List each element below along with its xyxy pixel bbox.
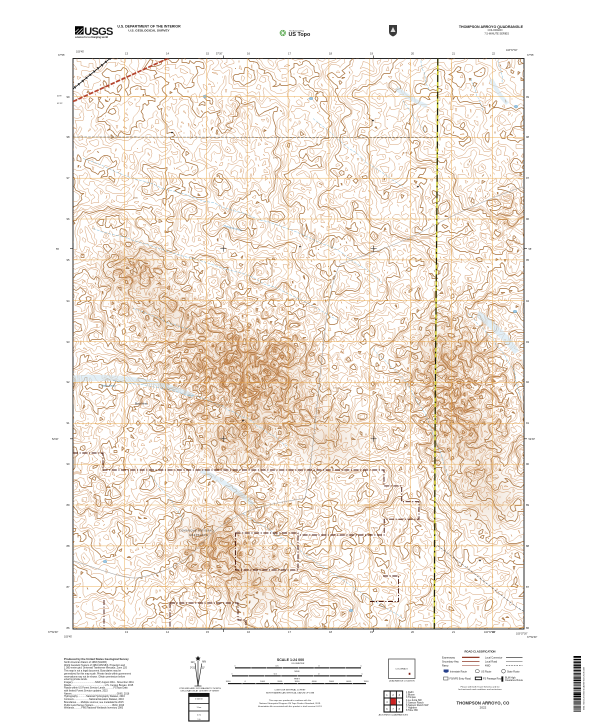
svg-text:86: 86 — [526, 626, 529, 630]
svg-text:21: 21 — [452, 52, 455, 56]
svg-text:4770: 4770 — [403, 153, 409, 155]
svg-text:37°55': 37°55' — [527, 54, 534, 57]
svg-text:U.S. GEOLOGICAL SURVEY: U.S. GEOLOGICAL SURVEY — [128, 28, 170, 32]
svg-text:MN: MN — [202, 661, 206, 664]
svg-text:4722: 4722 — [313, 478, 319, 480]
svg-text:99: 99 — [526, 95, 529, 99]
svg-text:Clearance Route: Clearance Route — [505, 679, 524, 682]
svg-text:8 Tobe NW: 8 Tobe NW — [406, 709, 419, 712]
svg-text:DECLINATION AT CENTER OF SHEET: DECLINATION AT CENTER OF SHEET — [181, 690, 220, 693]
svg-text:103°37'30": 103°37'30" — [516, 633, 528, 636]
svg-text:86: 86 — [67, 626, 70, 630]
svg-text:37°52'30": 37°52'30" — [48, 631, 58, 634]
svg-text:Interstate Route: Interstate Route — [450, 670, 468, 673]
svg-text:4WD: 4WD — [485, 664, 491, 667]
svg-text:16: 16 — [247, 52, 250, 56]
svg-text:97: 97 — [67, 176, 70, 180]
svg-text:COLORADO: COLORADO — [395, 668, 408, 671]
svg-text:Local Road: Local Road — [485, 660, 498, 663]
svg-text:NSN.7643014674909 NGA.REF.NO.: NSN.7643014674909 NGA.REF.NO.USGSX24K — [583, 666, 586, 710]
svg-text:CONTOUR INTERVAL 10 FEET: CONTOUR INTERVAL 10 FEET — [274, 689, 306, 692]
svg-text:1 ft: 1 ft — [197, 718, 200, 721]
svg-text:4741: 4741 — [333, 388, 339, 390]
svg-text:for-functional road conditions: for-functional road conditions and restr… — [458, 688, 502, 691]
svg-text:55': 55' — [529, 248, 533, 251]
svg-text:2022: 2022 — [480, 705, 487, 709]
svg-text:QUADRANGLE LOCATION: QUADRANGLE LOCATION — [389, 680, 415, 683]
svg-text:US Route: US Route — [481, 670, 492, 673]
svg-text:This map was produced to confo: This map was produced to conform with th… — [269, 699, 312, 702]
svg-text:14: 14 — [166, 630, 169, 634]
svg-text:13: 13 — [125, 630, 128, 634]
svg-text:88: 88 — [67, 544, 70, 548]
svg-text:17: 17 — [288, 630, 291, 634]
svg-text:18: 18 — [329, 52, 332, 56]
svg-text:A metadata file associated wit: A metadata file associated with this pro… — [258, 705, 322, 708]
svg-text:103°45': 103°45' — [76, 51, 85, 54]
svg-text:17: 17 — [288, 52, 291, 56]
svg-text:7.5-MINUTE SERIES: 7.5-MINUTE SERIES — [484, 32, 509, 36]
svg-text:37°55': 37°55' — [58, 54, 65, 57]
svg-text:4786: 4786 — [193, 598, 199, 600]
svg-text:ROAD CLASSIFICATION: ROAD CLASSIFICATION — [464, 650, 495, 654]
svg-text:98: 98 — [67, 135, 70, 139]
svg-text:95: 95 — [526, 258, 529, 262]
svg-text:2000: 2000 — [277, 681, 283, 683]
svg-text:94: 94 — [526, 299, 529, 303]
svg-text:22: 22 — [492, 52, 495, 56]
svg-text:55': 55' — [56, 248, 60, 251]
svg-text:4713: 4713 — [468, 198, 474, 200]
svg-text:1000: 1000 — [260, 681, 266, 683]
svg-text:Black Mesa: Black Mesa — [135, 403, 148, 406]
svg-text:Local Connector: Local Connector — [485, 656, 503, 659]
svg-text:57'30": 57'30" — [216, 53, 223, 56]
svg-text:4652: 4652 — [493, 478, 499, 480]
svg-text:95: 95 — [67, 258, 70, 262]
svg-text:93: 93 — [526, 340, 529, 344]
svg-text:4820: 4820 — [163, 448, 169, 450]
svg-text:41°55′: 41°55′ — [57, 103, 63, 105]
svg-text:98: 98 — [526, 135, 529, 139]
svg-text:4705: 4705 — [373, 528, 379, 530]
svg-text:90: 90 — [526, 462, 529, 466]
svg-text:20: 20 — [411, 52, 414, 56]
svg-text:0°31': 0°31' — [190, 667, 196, 670]
svg-text:18: 18 — [329, 630, 332, 634]
svg-text:ADJOINING QUADRANGLES: ADJOINING QUADRANGLES — [379, 714, 409, 717]
svg-text:Taylor Arroyo: Taylor Arroyo — [101, 385, 116, 388]
svg-text:Please with both Travel Schema: Please with both Travel Schema and list — [461, 686, 500, 689]
svg-text:21: 21 — [452, 630, 455, 634]
svg-text:UTM GRID AND 2019 MAGNETIC NOR: UTM GRID AND 2019 MAGNETIC NORTH — [179, 687, 221, 690]
svg-text:91: 91 — [67, 421, 70, 425]
svg-text:15: 15 — [206, 630, 209, 634]
svg-text:92: 92 — [67, 380, 70, 384]
svg-text:FEET: FEET — [294, 679, 300, 681]
svg-text:89: 89 — [67, 503, 70, 507]
svg-text:1 000 m: 1 000 m — [195, 699, 203, 701]
svg-text:13: 13 — [125, 52, 128, 56]
svg-text:19: 19 — [370, 52, 373, 56]
svg-text:103°37'30": 103°37'30" — [506, 49, 518, 52]
svg-text:MILE: MILE — [294, 671, 300, 673]
svg-text:US Topo: US Topo — [289, 32, 311, 38]
svg-text:NORTH AMERICAN VERTICAL DATUM: NORTH AMERICAN VERTICAL DATUM OF 1988 — [266, 692, 315, 695]
svg-text:Secondary Hwy: Secondary Hwy — [442, 660, 460, 663]
svg-text:96: 96 — [67, 217, 70, 221]
svg-text:COLORADO: COLORADO — [488, 28, 503, 32]
svg-text:COMANCHE NATIONAL: COMANCHE NATIONAL — [179, 530, 214, 533]
svg-text:102°37'30": 102°37'30" — [484, 631, 496, 634]
svg-text:90: 90 — [67, 462, 70, 466]
svg-text:Expressway: Expressway — [442, 656, 456, 659]
svg-text:KILOMETER: KILOMETER — [292, 663, 305, 665]
svg-text:11°: 11° — [202, 667, 205, 670]
svg-text:97: 97 — [526, 176, 529, 180]
svg-text:FS/NPS Entry Road: FS/NPS Entry Road — [450, 678, 472, 681]
svg-text:16: 16 — [247, 630, 250, 634]
svg-text:89: 89 — [526, 503, 529, 507]
svg-text:Ramp: Ramp — [442, 664, 449, 667]
svg-text:37°52'30": 37°52'30" — [527, 636, 537, 639]
svg-text:1000: 1000 — [226, 681, 232, 683]
svg-text:94: 94 — [67, 299, 70, 303]
svg-text:1 mi: 1 mi — [197, 715, 202, 717]
svg-text:93: 93 — [67, 340, 70, 344]
svg-text:103°45': 103°45' — [64, 636, 73, 639]
svg-text:96: 96 — [526, 217, 529, 221]
svg-text:15: 15 — [206, 52, 209, 56]
svg-text:6000: 6000 — [346, 681, 352, 683]
svg-text:4795: 4795 — [273, 158, 279, 160]
svg-text:FS Passage Route: FS Passage Route — [483, 678, 504, 681]
svg-text:National Geospatial Program US: National Geospatial Program US Topo Prod… — [259, 702, 321, 705]
svg-text:87: 87 — [526, 585, 529, 589]
svg-text:14: 14 — [166, 52, 169, 56]
svg-text:GN: GN — [191, 661, 195, 664]
svg-text:5000: 5000 — [329, 681, 335, 683]
svg-text:4840: 4840 — [133, 198, 139, 200]
svg-text:19: 19 — [370, 630, 373, 634]
svg-text:99: 99 — [67, 95, 70, 99]
svg-text:SCALE 1:24 000: SCALE 1:24 000 — [277, 658, 304, 662]
svg-text:State Route: State Route — [507, 670, 520, 673]
svg-text:88: 88 — [526, 544, 529, 548]
svg-text:20: 20 — [411, 630, 414, 634]
svg-text:3000: 3000 — [295, 681, 301, 683]
svg-text:Wetlands...........FWS Nationa: Wetlands...........FWS National Wetlands… — [64, 707, 124, 710]
svg-text:science for a changing world: science for a changing world — [75, 36, 108, 39]
svg-text:1 km: 1 km — [197, 707, 202, 709]
svg-text:4000: 4000 — [312, 681, 318, 683]
svg-text:7000: 7000 — [364, 681, 370, 683]
svg-text:87: 87 — [67, 585, 70, 589]
svg-text:91: 91 — [526, 421, 529, 425]
svg-text:52'30": 52'30" — [529, 438, 536, 441]
svg-text:GRASSLAND: GRASSLAND — [189, 534, 208, 537]
svg-text:92: 92 — [526, 380, 529, 384]
svg-text:52'30": 52'30" — [52, 438, 59, 441]
